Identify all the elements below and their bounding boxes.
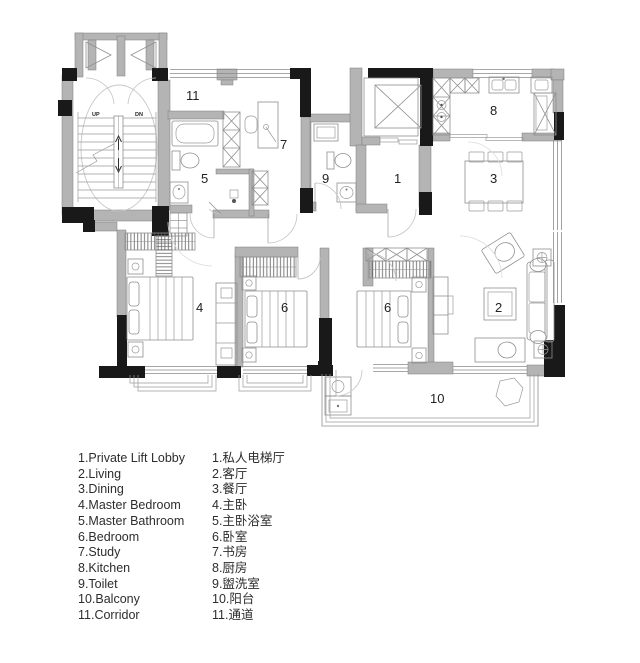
- legend-item-en: 3.Dining: [78, 482, 185, 498]
- study: [245, 102, 278, 148]
- room-label-bedroom-left: 6: [281, 300, 288, 315]
- room-label-balcony: 10: [430, 391, 444, 406]
- legend-item-en: 4.Master Bedroom: [78, 498, 185, 514]
- legend-item-zh: 2.客厅: [212, 467, 285, 483]
- legend-item-zh: 6.卧室: [212, 530, 285, 546]
- legend-item-en: 1.Private Lift Lobby: [78, 451, 185, 467]
- legend-item-en: 8.Kitchen: [78, 561, 185, 577]
- legend-item-zh: 10.阳台: [212, 592, 285, 608]
- legend-item-zh: 9.盥洗室: [212, 577, 285, 593]
- living-room: [433, 232, 554, 362]
- master-bathroom: [170, 112, 268, 216]
- bedroom-left: [240, 257, 307, 362]
- room-label-corridor: 11: [186, 88, 200, 103]
- legend-english: 1.Private Lift Lobby 2.Living 3.Dining 4…: [78, 451, 185, 624]
- legend-item-zh: 5.主卧浴室: [212, 514, 285, 530]
- legend-item-en: 5.Master Bathroom: [78, 514, 185, 530]
- room-label-study: 7: [280, 137, 287, 152]
- room-label-bedroom-right: 6: [384, 300, 391, 315]
- legend-item-zh: 3.餐厅: [212, 482, 285, 498]
- stairs-down-label: DN: [135, 112, 143, 118]
- legend-item-zh: 1.私人电梯厅: [212, 451, 285, 467]
- lift-shaft: [364, 78, 421, 144]
- master-bedroom: [125, 213, 237, 365]
- floorplan-page: UP DN: [0, 0, 640, 663]
- room-label-private-lift-lobby: 1: [394, 171, 401, 186]
- legend-chinese: 1.私人电梯厅 2.客厅 3.餐厅 4.主卧 5.主卧浴室 6.卧室 7.书房 …: [212, 451, 285, 624]
- room-label-living: 2: [495, 300, 502, 315]
- toilet-room: [314, 124, 356, 202]
- door-swings: [168, 183, 416, 396]
- room-label-dining: 3: [490, 171, 497, 186]
- legend-item-zh: 8.厨房: [212, 561, 285, 577]
- room-labels: 1 2 3 4 5 6 6 7 8 9 10 11: [186, 88, 502, 406]
- room-label-toilet: 9: [322, 171, 329, 186]
- floorplan-drawing: UP DN: [0, 0, 640, 450]
- room-label-kitchen: 8: [490, 103, 497, 118]
- balcony: [130, 374, 538, 426]
- legend-item-en: 11.Corridor: [78, 608, 185, 624]
- legend-item-en: 6.Bedroom: [78, 530, 185, 546]
- legend-item-en: 9.Toilet: [78, 577, 185, 593]
- legend-item-zh: 11.通道: [212, 608, 285, 624]
- room-label-master-bathroom: 5: [201, 171, 208, 186]
- legend-item-zh: 4.主卧: [212, 498, 285, 514]
- legend-item-en: 7.Study: [78, 545, 185, 561]
- legend-item-zh: 7.书房: [212, 545, 285, 561]
- legend-item-en: 10.Balcony: [78, 592, 185, 608]
- stairs-up-label: UP: [92, 112, 100, 118]
- legend-item-en: 2.Living: [78, 467, 185, 483]
- room-label-master-bedroom: 4: [196, 300, 203, 315]
